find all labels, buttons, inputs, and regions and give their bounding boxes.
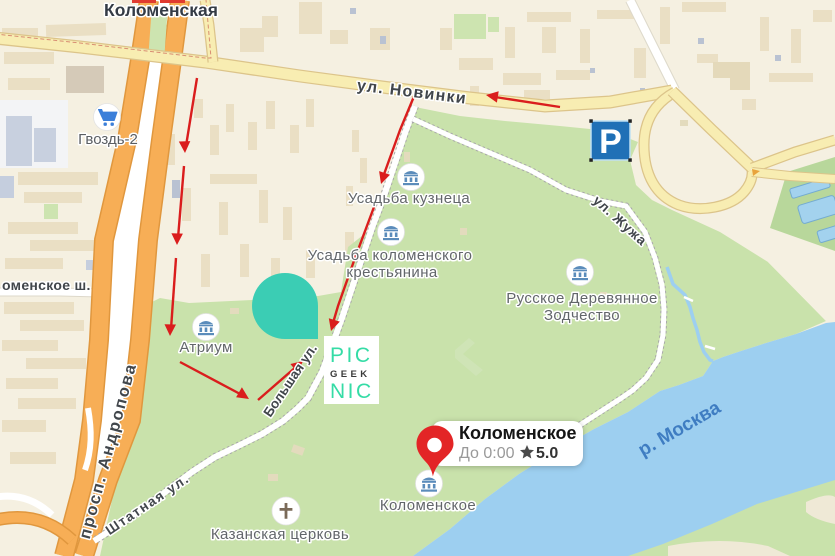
svg-text:Русское Деревянное: Русское Деревянное xyxy=(506,290,657,307)
svg-text:Казанская церковь: Казанская церковь xyxy=(211,526,349,543)
svg-text:Атриум: Атриум xyxy=(179,339,232,356)
svg-text:Гвоздь-2: Гвоздь-2 xyxy=(78,131,138,148)
svg-text:Коломенская: Коломенская xyxy=(104,0,218,20)
svg-text:5.0: 5.0 xyxy=(536,445,558,462)
svg-text:NIC: NIC xyxy=(330,380,374,403)
svg-text:GEEK: GEEK xyxy=(330,369,371,380)
svg-text:До 0:00: До 0:00 xyxy=(459,445,515,462)
svg-text:PIC: PIC xyxy=(330,344,373,367)
svg-text:Коломенское: Коломенское xyxy=(459,423,576,443)
svg-text:Усадьба коломенского: Усадьба коломенского xyxy=(308,247,473,264)
svg-text:крестьянина: крестьянина xyxy=(346,264,438,281)
svg-text:Коломенское: Коломенское xyxy=(380,497,476,514)
svg-text:P: P xyxy=(599,123,622,161)
svg-text:оменское ш.: оменское ш. xyxy=(2,277,91,293)
svg-text:Зодчество: Зодчество xyxy=(544,307,620,324)
svg-text:Усадьба кузнеца: Усадьба кузнеца xyxy=(348,190,471,207)
